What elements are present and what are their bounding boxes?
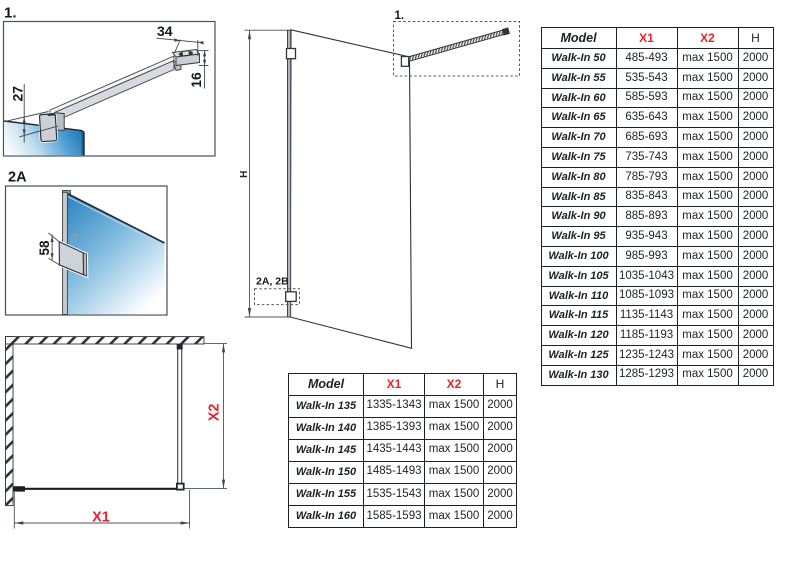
svg-text:2A, 2B: 2A, 2B bbox=[256, 275, 289, 287]
svg-text:1.: 1. bbox=[395, 10, 405, 22]
svg-text:H: H bbox=[239, 171, 250, 178]
svg-text:34: 34 bbox=[157, 23, 173, 39]
svg-text:X2: X2 bbox=[206, 404, 222, 422]
svg-text:27: 27 bbox=[10, 86, 26, 102]
svg-text:1.: 1. bbox=[4, 5, 17, 22]
svg-text:2A: 2A bbox=[8, 170, 27, 186]
svg-text:X1: X1 bbox=[92, 510, 110, 526]
svg-text:58: 58 bbox=[37, 240, 52, 256]
svg-text:16: 16 bbox=[188, 72, 204, 88]
